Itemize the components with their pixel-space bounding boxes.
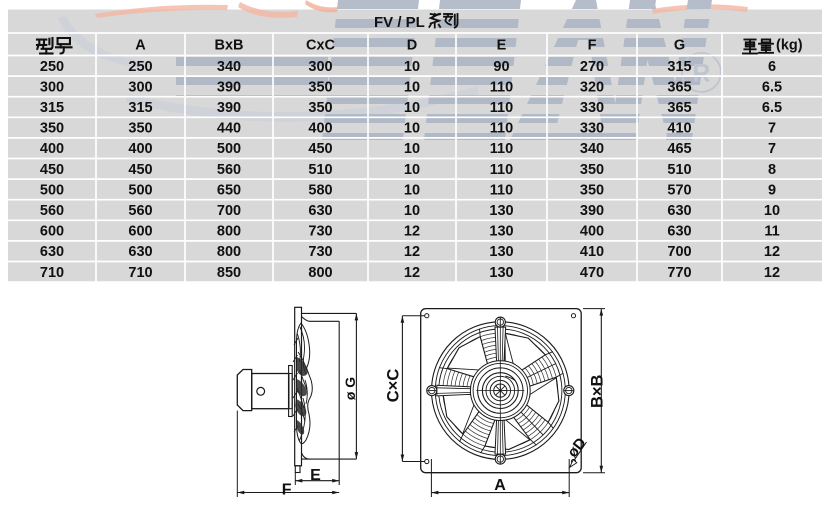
svg-text:12: 12 (404, 265, 420, 281)
svg-text:A: A (494, 477, 506, 494)
svg-text:11: 11 (764, 224, 779, 240)
svg-text:130: 130 (489, 265, 513, 281)
svg-text:G: G (674, 38, 685, 54)
svg-text:250: 250 (40, 59, 64, 75)
svg-text:12: 12 (764, 265, 780, 281)
svg-text:800: 800 (217, 224, 241, 240)
svg-text:600: 600 (128, 224, 152, 240)
svg-text:390: 390 (580, 203, 604, 219)
svg-text:390: 390 (217, 79, 241, 95)
svg-text:700: 700 (667, 244, 691, 260)
svg-text:10: 10 (404, 203, 420, 219)
svg-text:560: 560 (217, 162, 241, 178)
svg-text:365: 365 (667, 100, 691, 116)
svg-text:10: 10 (404, 162, 420, 178)
svg-text:12: 12 (764, 244, 780, 260)
svg-text:10: 10 (404, 59, 420, 75)
svg-text:F: F (588, 38, 597, 54)
svg-text:10: 10 (404, 100, 420, 116)
svg-text:410: 410 (580, 244, 604, 260)
svg-text:600: 600 (40, 224, 64, 240)
svg-text:110: 110 (490, 182, 513, 198)
svg-text:D: D (407, 38, 417, 54)
svg-text:E: E (497, 38, 507, 54)
svg-text:315: 315 (128, 100, 152, 116)
svg-text:465: 465 (667, 141, 691, 157)
svg-text:300: 300 (128, 79, 152, 95)
svg-text:CxC: CxC (306, 38, 336, 54)
svg-text:730: 730 (308, 244, 332, 260)
svg-text:340: 340 (580, 141, 604, 157)
svg-text:850: 850 (217, 265, 241, 281)
svg-text:710: 710 (128, 265, 152, 281)
svg-text:(kg): (kg) (776, 38, 803, 54)
svg-text:300: 300 (40, 79, 64, 95)
svg-text:315: 315 (667, 59, 691, 75)
svg-text:340: 340 (217, 59, 241, 75)
svg-text:FV / PL: FV / PL (374, 14, 425, 31)
svg-text:800: 800 (308, 265, 332, 281)
svg-text:250: 250 (128, 59, 152, 75)
svg-text:110: 110 (490, 100, 513, 116)
svg-text:9: 9 (768, 182, 776, 198)
svg-text:365: 365 (667, 79, 691, 95)
svg-text:10: 10 (404, 121, 420, 137)
svg-text:500: 500 (40, 182, 64, 198)
svg-text:800: 800 (217, 244, 241, 260)
svg-text:130: 130 (489, 203, 513, 219)
svg-text:700: 700 (217, 203, 241, 219)
svg-text:560: 560 (128, 203, 152, 219)
svg-text:315: 315 (40, 100, 64, 116)
svg-text:10: 10 (764, 203, 780, 219)
svg-text:630: 630 (667, 203, 691, 219)
svg-text:7: 7 (768, 141, 776, 157)
svg-text:12: 12 (404, 244, 420, 260)
svg-text:710: 710 (40, 265, 64, 281)
svg-text:110: 110 (490, 79, 513, 95)
svg-text:770: 770 (667, 265, 691, 281)
svg-text:C×C: C×C (385, 369, 403, 403)
svg-text:730: 730 (308, 224, 332, 240)
svg-text:E: E (310, 467, 321, 484)
svg-text:400: 400 (40, 141, 64, 157)
svg-text:12: 12 (404, 224, 420, 240)
svg-text:400: 400 (308, 121, 332, 137)
svg-text:450: 450 (308, 141, 332, 157)
svg-text:6.5: 6.5 (762, 79, 782, 95)
svg-text:470: 470 (580, 265, 604, 281)
svg-text:90: 90 (493, 59, 509, 75)
svg-text:300: 300 (308, 59, 332, 75)
svg-text:B×B: B×B (588, 374, 606, 408)
svg-text:130: 130 (489, 224, 513, 240)
svg-text:450: 450 (128, 162, 152, 178)
svg-text:A: A (135, 38, 146, 54)
svg-text:10: 10 (404, 182, 420, 198)
svg-text:410: 410 (667, 121, 691, 137)
svg-text:350: 350 (308, 100, 332, 116)
svg-text:7: 7 (768, 121, 776, 137)
svg-text:270: 270 (580, 59, 604, 75)
svg-text:8: 8 (768, 162, 776, 178)
svg-text:BxB: BxB (214, 38, 243, 54)
svg-text:350: 350 (308, 79, 332, 95)
svg-text:350: 350 (128, 121, 152, 137)
svg-text:630: 630 (667, 224, 691, 240)
svg-text:110: 110 (490, 162, 513, 178)
svg-text:6: 6 (768, 59, 776, 75)
svg-text:630: 630 (128, 244, 152, 260)
svg-text:630: 630 (40, 244, 64, 260)
svg-text:F: F (282, 482, 292, 499)
svg-text:350: 350 (580, 182, 604, 198)
svg-text:350: 350 (580, 162, 604, 178)
svg-text:570: 570 (667, 182, 691, 198)
svg-text:R: R (692, 60, 710, 88)
svg-text:450: 450 (40, 162, 64, 178)
svg-text:630: 630 (308, 203, 332, 219)
svg-text:390: 390 (217, 100, 241, 116)
svg-text:110: 110 (490, 141, 513, 157)
svg-text:580: 580 (308, 182, 332, 198)
svg-text:6.5: 6.5 (762, 100, 782, 116)
svg-text:320: 320 (580, 79, 604, 95)
svg-text:130: 130 (489, 244, 513, 260)
svg-text:510: 510 (667, 162, 691, 178)
svg-text:510: 510 (308, 162, 332, 178)
svg-text:400: 400 (128, 141, 152, 157)
svg-text:500: 500 (217, 141, 241, 157)
svg-text:330: 330 (580, 121, 604, 137)
svg-text:10: 10 (404, 79, 420, 95)
svg-text:110: 110 (490, 121, 513, 137)
svg-text:500: 500 (128, 182, 152, 198)
svg-text:440: 440 (217, 121, 241, 137)
svg-text:330: 330 (580, 100, 604, 116)
svg-text:ø G: ø G (342, 377, 358, 400)
svg-text:650: 650 (217, 182, 241, 198)
svg-text:10: 10 (404, 141, 420, 157)
svg-text:350: 350 (40, 121, 64, 137)
svg-text:400: 400 (580, 224, 604, 240)
svg-text:560: 560 (40, 203, 64, 219)
